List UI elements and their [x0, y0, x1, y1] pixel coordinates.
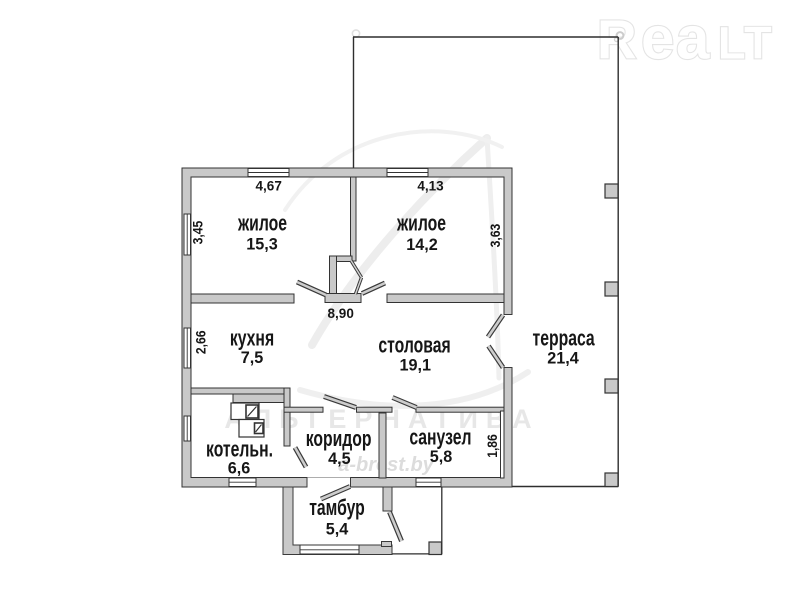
svg-text:14,2: 14,2: [406, 236, 438, 254]
svg-text:5,4: 5,4: [326, 520, 349, 538]
svg-text:коридор: коридор: [306, 426, 372, 451]
svg-text:21,4: 21,4: [547, 349, 579, 367]
svg-text:тамбур: тамбур: [309, 495, 365, 520]
svg-text:19,1: 19,1: [400, 357, 432, 375]
svg-text:котельн.: котельн.: [206, 437, 273, 462]
svg-text:5,8: 5,8: [430, 448, 453, 466]
svg-text:3,45: 3,45: [190, 221, 206, 245]
svg-text:жилое: жилое: [237, 211, 287, 236]
svg-text:4,13: 4,13: [417, 178, 444, 193]
svg-text:4,5: 4,5: [328, 450, 351, 468]
svg-text:кухня: кухня: [230, 326, 274, 351]
svg-text:жилое: жилое: [396, 211, 446, 236]
svg-text:1,86: 1,86: [484, 434, 500, 458]
svg-text:3,63: 3,63: [487, 224, 503, 248]
svg-text:терраса: терраса: [533, 326, 595, 351]
svg-text:санузел: санузел: [409, 425, 471, 450]
svg-text:7,5: 7,5: [241, 349, 264, 367]
svg-text:15,3: 15,3: [246, 236, 278, 254]
svg-text:столовая: столовая: [378, 333, 450, 358]
svg-text:4,67: 4,67: [256, 178, 282, 193]
svg-text:6,6: 6,6: [228, 460, 251, 478]
svg-text:8,90: 8,90: [328, 306, 354, 321]
svg-text:2,66: 2,66: [193, 330, 209, 354]
